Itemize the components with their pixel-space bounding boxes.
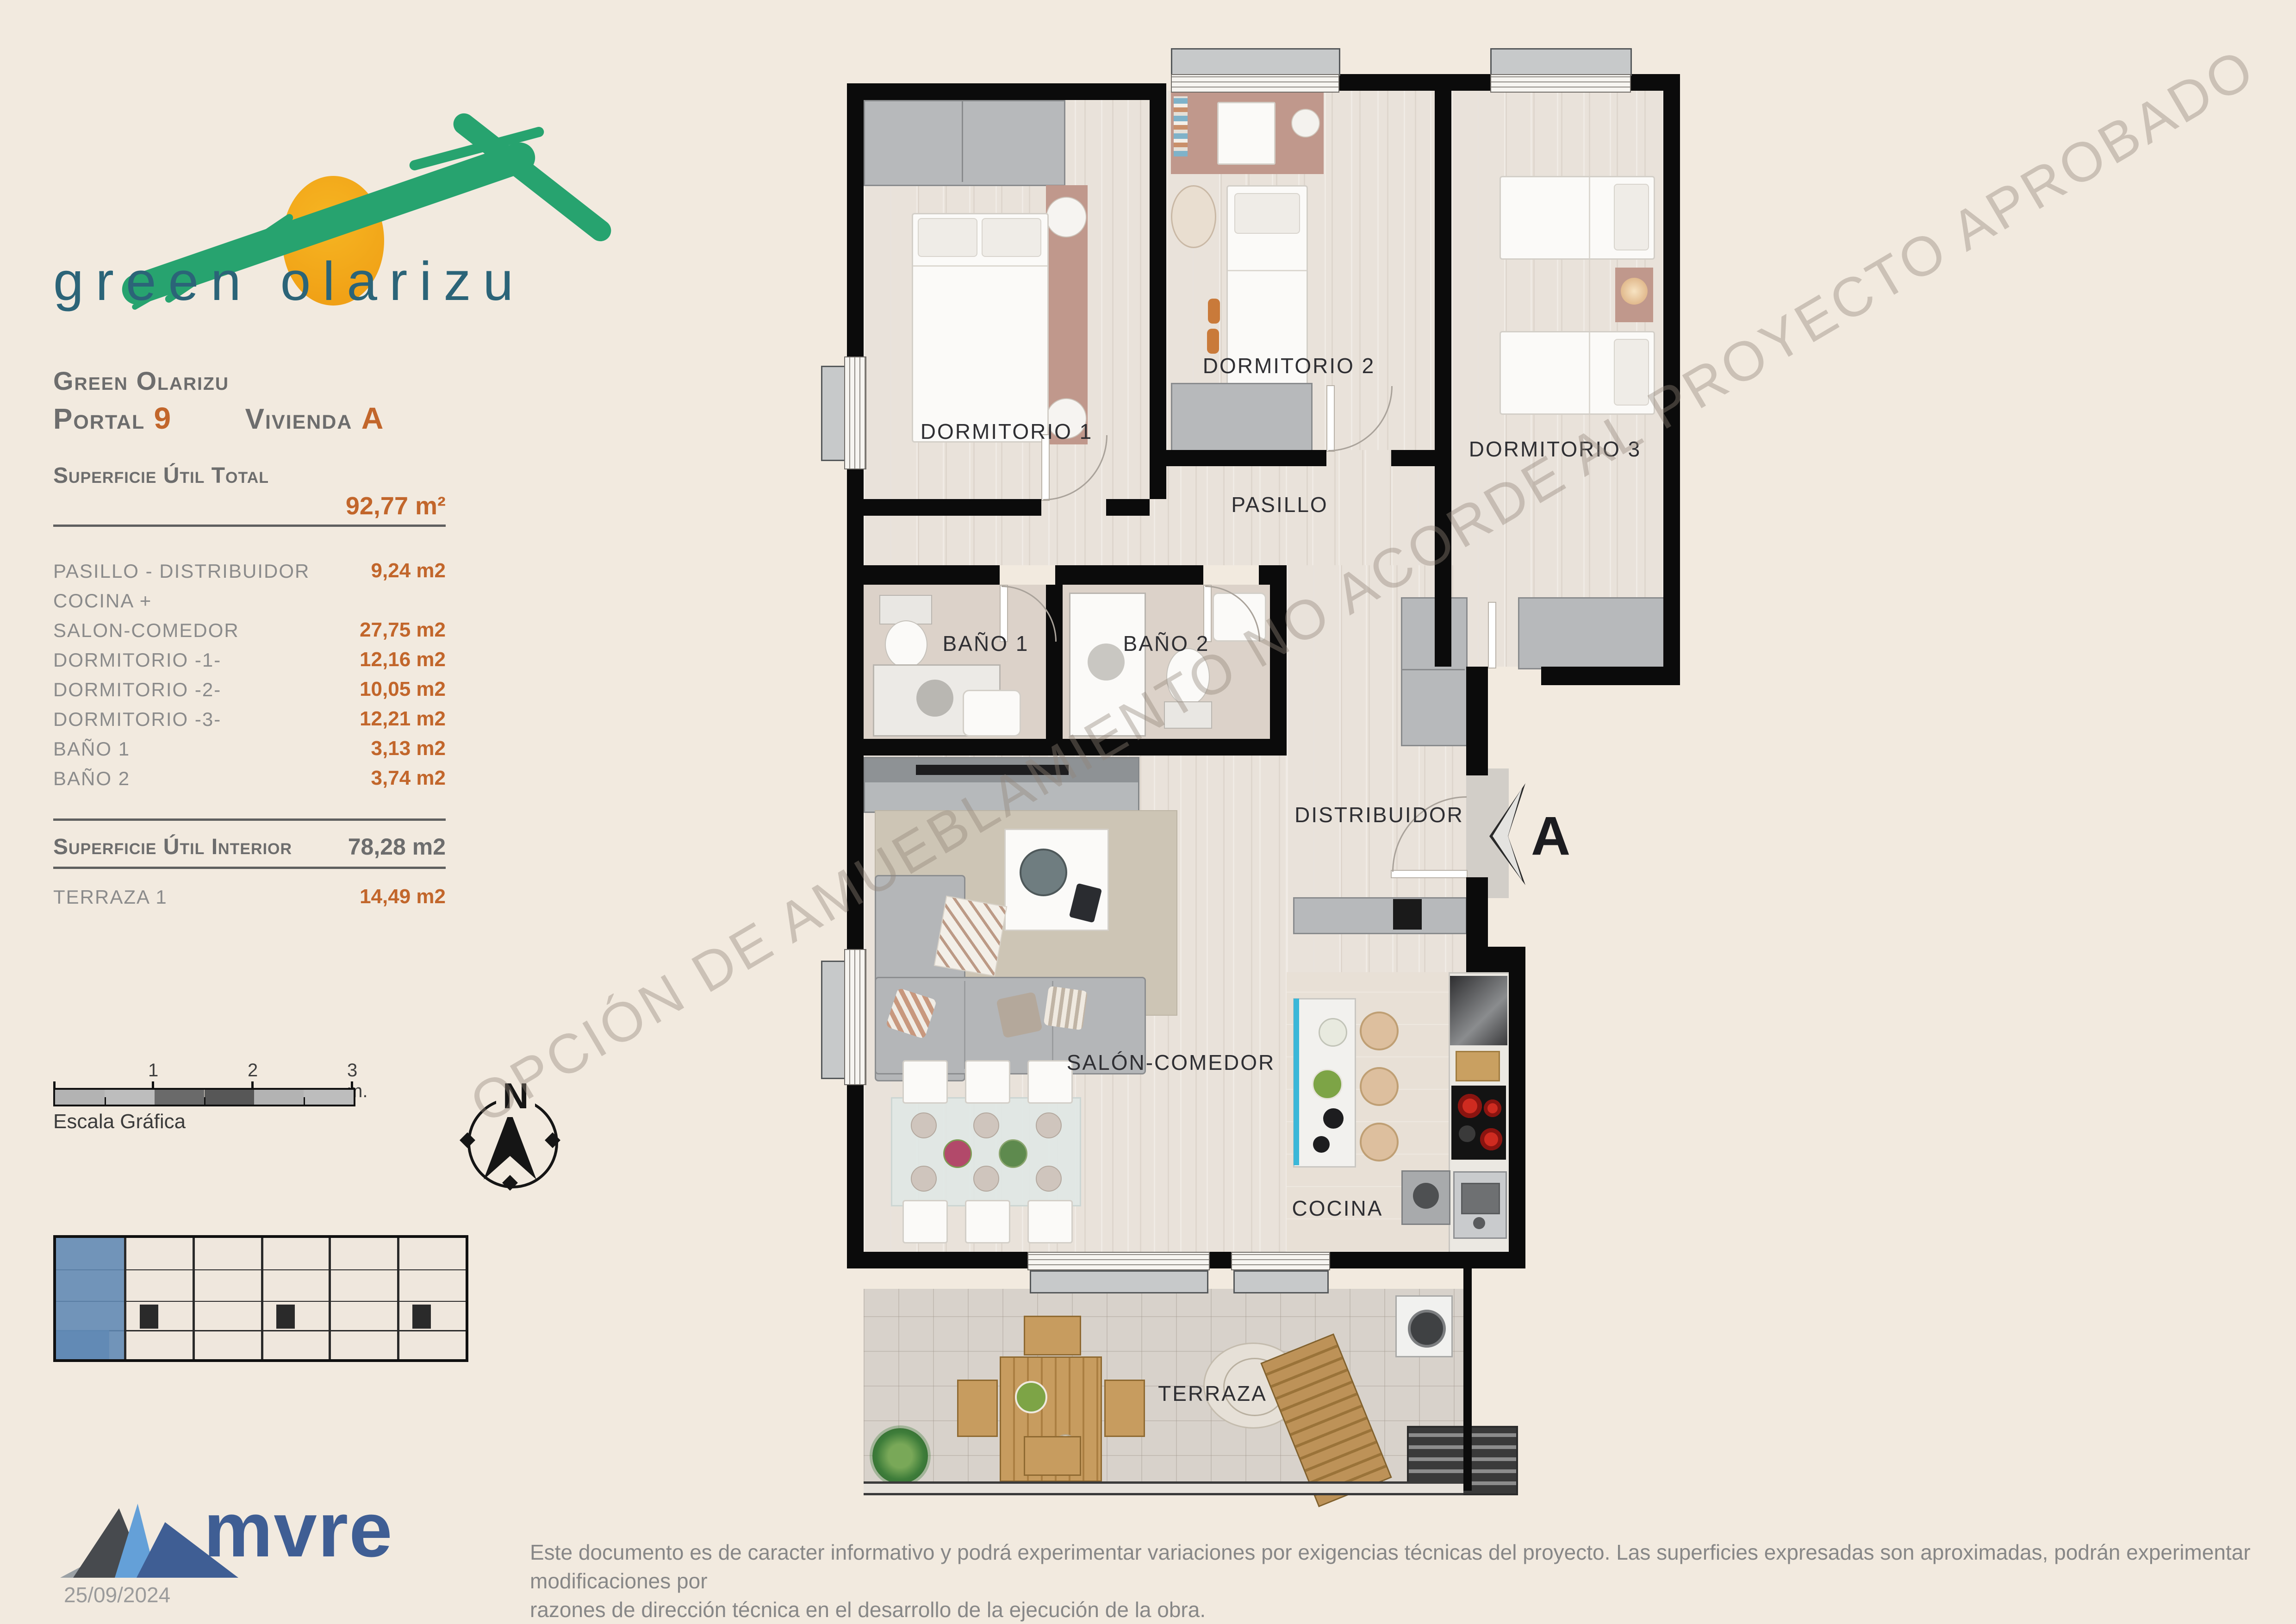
mvre-logo: mvre bbox=[60, 1504, 430, 1578]
disclaimer-line-2: razones de dirección técnica en el desar… bbox=[530, 1595, 2256, 1624]
surface-row: COCINA + bbox=[53, 589, 446, 617]
bar-stool bbox=[1360, 1123, 1399, 1162]
hall-closet bbox=[1401, 597, 1468, 746]
fridge bbox=[1450, 976, 1507, 1045]
tv bbox=[916, 765, 1069, 775]
dining-chair bbox=[902, 1200, 948, 1243]
highlighted-unit-terrace bbox=[56, 1330, 109, 1359]
washing-machine bbox=[1395, 1295, 1453, 1357]
room-label-cocina: COCINA bbox=[1292, 1196, 1383, 1221]
room-label-banyo-1: BAÑO 1 bbox=[943, 631, 1029, 656]
room-label-dormitorio-3: DORMITORIO 3 bbox=[1469, 437, 1642, 462]
cutting-board bbox=[1456, 1051, 1500, 1081]
single-bed bbox=[1500, 331, 1655, 415]
floorplan-sheet: { "logo": { "wordmark": "green olarizu" … bbox=[0, 0, 2296, 1624]
floor-plan: DORMITORIO 1 DORMITORIO 2 DORMITORIO 3 P… bbox=[847, 46, 1680, 1500]
terrace-window bbox=[1231, 1252, 1330, 1270]
centerpiece-flowers bbox=[999, 1139, 1027, 1168]
outdoor-chair bbox=[957, 1380, 998, 1437]
divider bbox=[53, 525, 446, 527]
toilet-bowl bbox=[885, 620, 927, 668]
room-label-terraza: TERRAZA bbox=[1158, 1381, 1267, 1406]
disclaimer-line-1: Este documento es de caracter informativ… bbox=[530, 1538, 2256, 1595]
logo-wordmark: green olarizu bbox=[53, 250, 525, 313]
scale-tick-label-1: 1 bbox=[148, 1060, 158, 1081]
vivienda-letter: A bbox=[361, 401, 385, 435]
decor-disc bbox=[1291, 109, 1320, 137]
room-label-banyo-2: BAÑO 2 bbox=[1123, 631, 1210, 656]
room-label-dormitorio-1: DORMITORIO 1 bbox=[921, 419, 1093, 444]
books bbox=[1174, 96, 1188, 156]
surface-interior-row: Superficie Útil Interior 78,28 m2 bbox=[53, 833, 446, 864]
surface-row: SALON-COMEDOR27,75 m2 bbox=[53, 618, 446, 646]
laptop bbox=[1217, 102, 1276, 165]
roller-blind-box bbox=[1490, 48, 1632, 76]
terrace-window bbox=[1027, 1252, 1210, 1270]
door-leaf bbox=[1488, 602, 1496, 668]
surface-row: DORMITORIO -1-12,16 m2 bbox=[53, 648, 446, 676]
surface-interior-label: Superficie Útil Interior bbox=[53, 834, 292, 860]
window bbox=[1490, 74, 1631, 93]
window bbox=[1171, 74, 1339, 93]
toilet-bowl bbox=[1166, 648, 1210, 706]
dining-chair bbox=[965, 1200, 1010, 1243]
terraza-value: 14,49 m2 bbox=[360, 885, 446, 908]
green-olarizu-logo: green olarizu bbox=[83, 56, 569, 343]
project-title: Green Olarizu bbox=[53, 366, 229, 396]
wardrobe bbox=[864, 100, 1065, 186]
outdoor-chair bbox=[1024, 1316, 1081, 1355]
cushion bbox=[1043, 986, 1088, 1030]
window bbox=[844, 356, 866, 469]
surface-interior-value: 78,28 m2 bbox=[348, 833, 446, 860]
single-bed bbox=[1500, 176, 1655, 260]
throw-blanket bbox=[934, 896, 1008, 977]
surface-row: PASILLO - DISTRIBUIDOR9,24 m2 bbox=[53, 559, 446, 587]
dining-chair bbox=[1027, 1200, 1073, 1243]
scale-bar: 1 2 3 m. Escala Gráfica bbox=[53, 1060, 377, 1130]
room-label-distribuidor: DISTRIBUIDOR bbox=[1294, 802, 1464, 827]
coffee-table bbox=[1004, 829, 1109, 931]
surface-row: BAÑO 23,74 m2 bbox=[53, 767, 446, 794]
centerpiece-flowers bbox=[943, 1139, 972, 1168]
room-label-salon-comedor: SALÓN-COMEDOR bbox=[1067, 1050, 1275, 1075]
wardrobe bbox=[1518, 597, 1666, 669]
bar-stool bbox=[1360, 1067, 1399, 1106]
dining-chair bbox=[902, 1060, 948, 1104]
double-bed bbox=[912, 213, 1049, 443]
roller-blind-box bbox=[1030, 1270, 1208, 1293]
surface-row: DORMITORIO -2-10,05 m2 bbox=[53, 678, 446, 706]
surface-terraza-row: TERRAZA 1 14,49 m2 bbox=[53, 885, 446, 913]
slippers bbox=[1207, 329, 1219, 354]
dining-chair bbox=[1027, 1060, 1073, 1104]
salad-plate bbox=[1015, 1381, 1047, 1413]
kitchen-island bbox=[1293, 998, 1356, 1168]
surface-total-label: Superficie Útil Total bbox=[53, 463, 269, 488]
window bbox=[844, 949, 866, 1085]
terraza-label: TERRAZA 1 bbox=[53, 886, 168, 908]
shower-drain bbox=[916, 680, 953, 717]
portal-number: 9 bbox=[154, 401, 172, 435]
tv-sideboard bbox=[864, 757, 1139, 813]
divider bbox=[53, 818, 446, 821]
scale-bar-body bbox=[53, 1088, 355, 1106]
plant bbox=[872, 1428, 928, 1484]
toilet bbox=[1164, 701, 1212, 729]
outdoor-chair bbox=[1104, 1380, 1145, 1437]
date: 25/09/2024 bbox=[64, 1582, 170, 1607]
north-label: N bbox=[496, 1075, 535, 1117]
portal-label: Portal bbox=[53, 403, 145, 435]
roller-blind-box bbox=[1233, 1270, 1329, 1293]
bar-stool bbox=[1360, 1012, 1399, 1050]
surface-row: BAÑO 13,13 m2 bbox=[53, 737, 446, 765]
kitchen-sink bbox=[1453, 1171, 1507, 1239]
shower-drain bbox=[1088, 643, 1125, 681]
vivienda-label: Vivienda bbox=[245, 403, 353, 435]
surface-row: DORMITORIO -3-12,21 m2 bbox=[53, 707, 446, 735]
scale-tick-label-2: 2 bbox=[248, 1060, 258, 1081]
terrace-glass-rail bbox=[864, 1481, 1463, 1495]
building-key-plan bbox=[53, 1235, 468, 1362]
sink bbox=[963, 690, 1021, 737]
roller-blind-box bbox=[821, 366, 846, 461]
dining-table bbox=[891, 1097, 1081, 1206]
roller-blind-box bbox=[821, 961, 846, 1079]
surface-total-value: 92,77 m² bbox=[53, 492, 446, 520]
roller-blind-box bbox=[1171, 48, 1340, 76]
slippers bbox=[1208, 299, 1220, 324]
cooktop bbox=[1451, 1086, 1506, 1160]
desk-chair bbox=[1171, 185, 1216, 248]
salad-plate bbox=[1312, 1069, 1343, 1099]
outdoor-chair bbox=[1024, 1436, 1081, 1476]
cushion bbox=[996, 992, 1043, 1038]
room-label-dormitorio-2: DORMITORIO 2 bbox=[1203, 353, 1375, 378]
disclaimer: Este documento es de caracter informativ… bbox=[530, 1538, 2256, 1624]
divider bbox=[53, 867, 446, 869]
mvre-wordmark: mvre bbox=[204, 1485, 393, 1574]
lamp bbox=[1621, 278, 1648, 305]
unit-title: Portal 9 Vivienda A bbox=[53, 400, 384, 436]
scale-bar-caption: Escala Gráfica bbox=[53, 1110, 186, 1133]
dining-chair bbox=[965, 1060, 1010, 1104]
dishwasher bbox=[1401, 1170, 1450, 1225]
room-label-pasillo: PASILLO bbox=[1231, 492, 1328, 517]
section-marker-letter: A bbox=[1531, 805, 1570, 868]
sideboard bbox=[1171, 383, 1313, 453]
hall-cabinet bbox=[1293, 897, 1467, 934]
rug-round bbox=[1046, 197, 1087, 237]
